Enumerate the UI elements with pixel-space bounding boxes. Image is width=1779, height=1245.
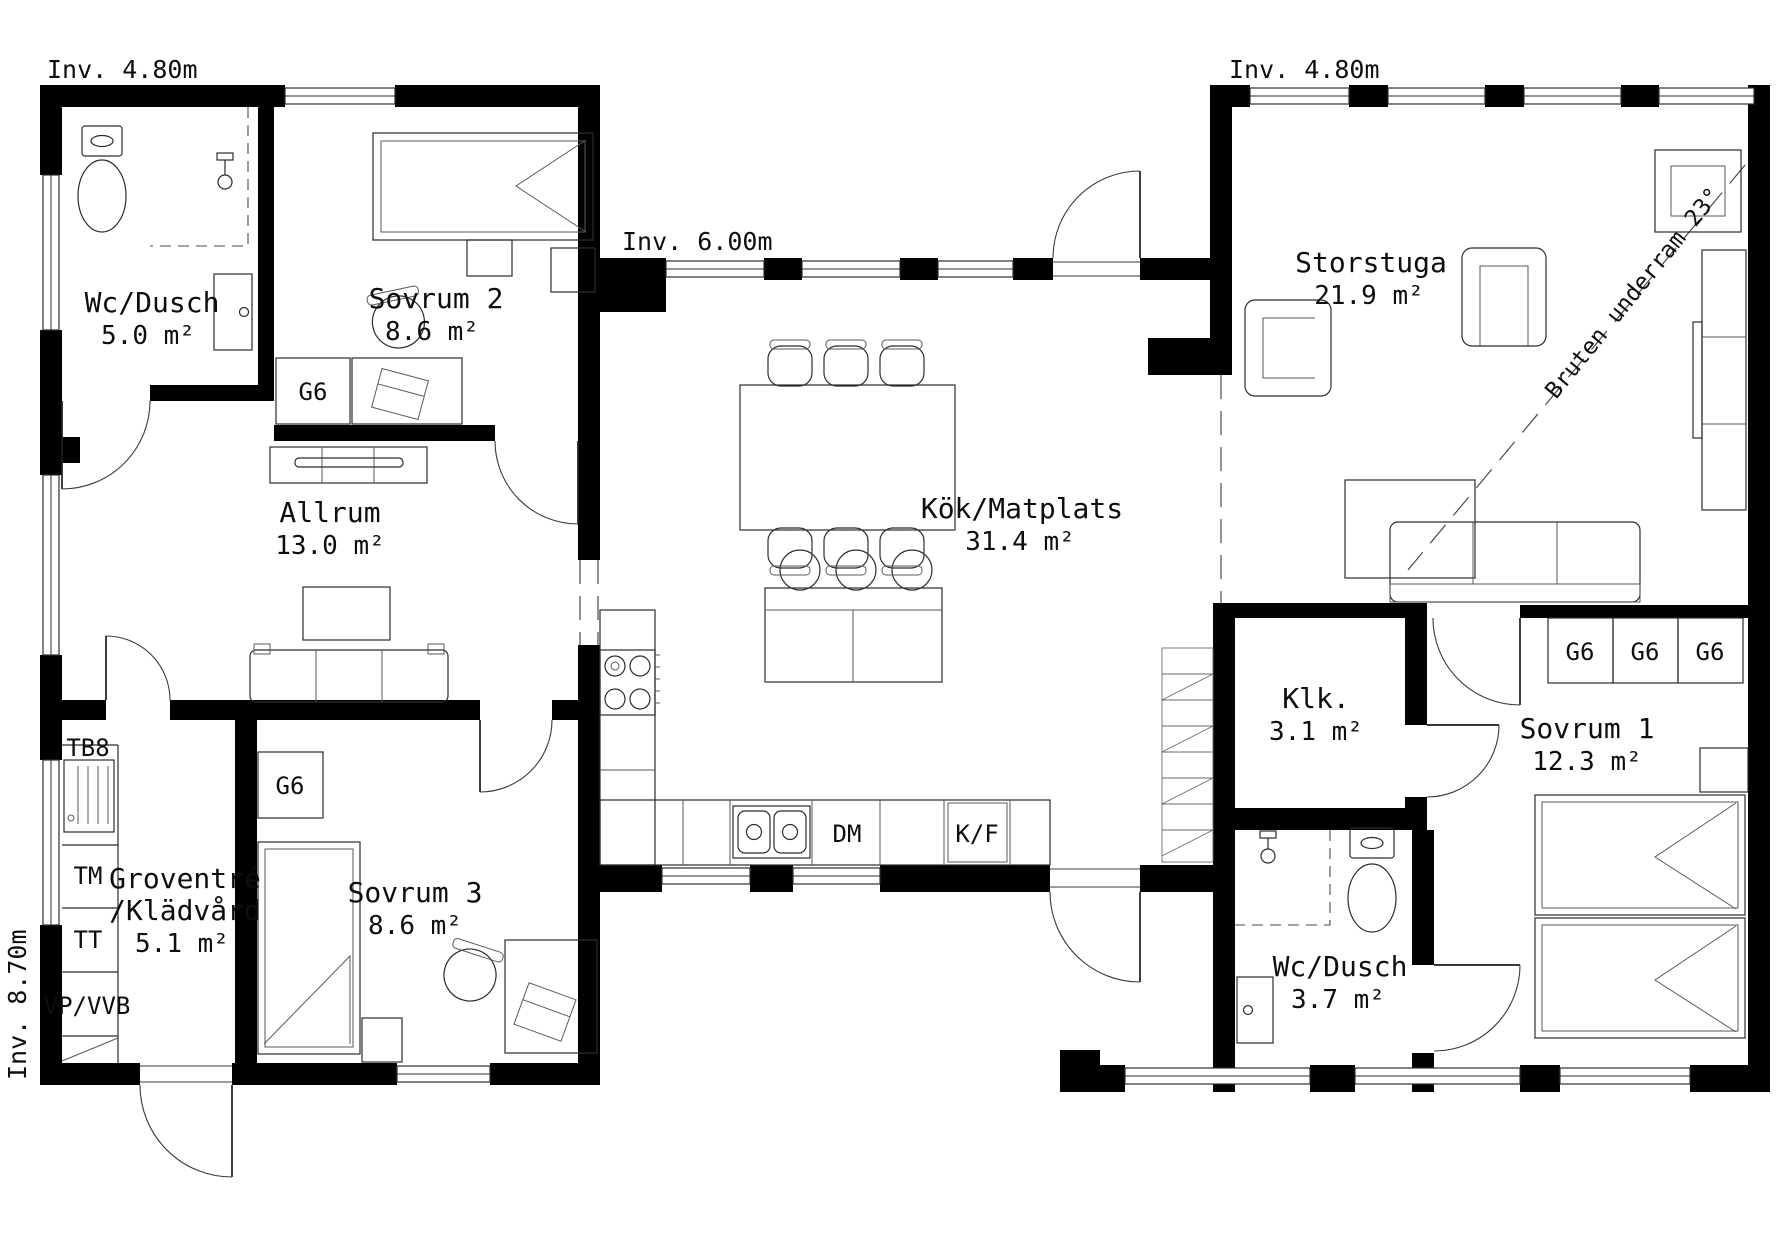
window: [397, 1066, 490, 1082]
tumble-dryer-label: TT: [74, 926, 103, 954]
floor-plan-drawing: Inv. 4.80m Inv. 6.00m Inv. 4.80m Inv. 8.…: [0, 0, 1779, 1245]
window: [1524, 88, 1621, 104]
armchair: [1462, 248, 1546, 346]
window: [1125, 1068, 1310, 1084]
window: [802, 261, 900, 277]
room-area-klk: 3.1 m²: [1269, 717, 1363, 747]
wall-segment: [1412, 830, 1434, 965]
wall-segment: [1485, 85, 1524, 107]
wall-segment: [1520, 605, 1748, 618]
kitchen-sink: [733, 806, 810, 858]
wardrobe-label: G6: [1566, 638, 1595, 666]
bed: [1535, 918, 1745, 1038]
fridge-freezer-label: K/F: [955, 820, 998, 848]
toilet: [78, 126, 126, 232]
room-label-wc2: Wc/Dusch: [1273, 950, 1408, 983]
bed: [258, 842, 360, 1054]
bathroom-sink: [1237, 977, 1273, 1043]
underbed-box: [467, 240, 512, 276]
shower-mixer: [217, 153, 233, 189]
tv-bench-allrum: [270, 447, 427, 483]
wall-segment: [1210, 85, 1232, 375]
wall-segment: [880, 865, 1050, 892]
armchair: [1245, 300, 1331, 396]
door-klk: [1427, 725, 1499, 797]
dishwasher-label: DM: [833, 820, 862, 848]
nightstand: [1700, 748, 1748, 792]
room-label-sovrum3: Sovrum 3: [348, 876, 483, 909]
wall-segment: [1405, 618, 1427, 725]
room-area-sovrum2: 8.6 m²: [385, 317, 479, 347]
room-area-wc1: 5.0 m²: [101, 321, 195, 351]
wall-segment: [40, 655, 62, 760]
wall-segment: [750, 865, 793, 892]
shower-mixer: [1260, 831, 1276, 863]
bathroom-sink: [214, 274, 252, 350]
door-sovrum1: [1433, 618, 1520, 705]
sofa-storstuga: [1390, 522, 1640, 602]
wall-segment: [1520, 1065, 1560, 1092]
wall-segment: [578, 85, 600, 560]
wall-segment: [1213, 603, 1235, 830]
room-area-allrum: 13.0 m²: [275, 531, 385, 561]
door-terrace: [1050, 869, 1140, 982]
window: [285, 88, 395, 104]
shower-outline-wc2: [1235, 830, 1330, 925]
room-label-klk: Klk.: [1282, 682, 1349, 715]
coffee-table-storstuga: [1345, 480, 1475, 578]
tv-bench-storstuga: [1693, 250, 1746, 510]
wall-segment: [62, 437, 80, 463]
desk-sovrum2: [352, 358, 462, 424]
wall-segment: [170, 700, 480, 720]
window: [43, 760, 59, 925]
window: [666, 261, 764, 277]
window: [662, 868, 750, 884]
washing-machine-label: TM: [74, 862, 103, 890]
wall-segment: [232, 1063, 397, 1085]
wardrobe-label: G6: [299, 378, 328, 406]
room-area-sovrum1: 12.3 m²: [1532, 747, 1642, 777]
room-label-storstuga: Storstuga: [1295, 246, 1447, 279]
door-sovrum3: [480, 720, 552, 792]
window: [938, 261, 1013, 277]
dim-label-top-mid: Inv. 6.00m: [622, 227, 773, 256]
wall-segment: [1213, 808, 1427, 830]
doors: [62, 171, 1520, 1177]
wardrobe-label: G6: [1631, 638, 1660, 666]
kitchen-island: [765, 550, 942, 682]
kitchen-counter-left: [600, 610, 660, 865]
room-label-kok: Kök/Matplats: [921, 492, 1123, 525]
dining-set: [740, 340, 955, 575]
wall-segment: [1013, 258, 1053, 280]
dim-label-top-right: Inv. 4.80m: [1229, 55, 1380, 84]
wall-segment: [40, 85, 285, 107]
wall-segment: [274, 425, 495, 441]
dim-label-left-side: Inv. 8.70m: [3, 929, 32, 1080]
wall-segment: [1690, 1065, 1770, 1092]
wardrobe-label: G6: [1696, 638, 1725, 666]
heat-pump-label: VP/VVB: [44, 992, 131, 1020]
wall-segment: [900, 258, 938, 280]
room-area-sovrum3: 8.6 m²: [368, 911, 462, 941]
wall-segment: [258, 107, 274, 385]
wall-segment: [40, 330, 62, 475]
opening-allrum-kok: [580, 560, 598, 645]
window: [793, 868, 880, 884]
wall-segment: [62, 700, 106, 720]
window: [1560, 1068, 1690, 1084]
wall-segment: [1148, 338, 1232, 375]
bed: [1535, 795, 1745, 915]
bed: [373, 133, 593, 240]
floor-plan-page: Inv. 4.80m Inv. 6.00m Inv. 4.80m Inv. 8.…: [0, 0, 1779, 1245]
foot-box: [362, 1018, 402, 1062]
room-label-groventre-2: /Klädvård: [109, 894, 261, 927]
wall-segment: [1213, 603, 1427, 618]
wall-segment: [150, 385, 274, 401]
door-groventre: [106, 636, 170, 700]
window: [1250, 88, 1349, 104]
door-kitchen-north: [1053, 171, 1140, 276]
door-wc2: [1434, 965, 1520, 1051]
door-entry: [140, 1066, 232, 1177]
wall-segment: [552, 700, 600, 720]
wall-segment: [1213, 830, 1235, 1092]
wall-segment: [40, 85, 62, 175]
wall-segment: [1349, 85, 1388, 107]
wardrobe-label: G6: [276, 772, 305, 800]
wall-segment: [1748, 85, 1770, 1092]
roof-annotation: Bruten underram 23°: [1540, 183, 1726, 404]
wall-segment: [764, 258, 802, 280]
room-label-allrum: Allrum: [279, 496, 380, 529]
room-label-wc1: Wc/Dusch: [85, 286, 220, 319]
wall-segment: [1140, 865, 1213, 892]
sofa-allrum: [250, 644, 448, 702]
room-label-groventre-1: Groventré: [109, 862, 261, 895]
wall-segment: [40, 1063, 140, 1085]
coffee-table-allrum: [303, 587, 390, 640]
exterior-steps-hatch: [1162, 648, 1213, 862]
wall-segment: [1310, 1065, 1355, 1092]
room-area-storstuga: 21.9 m²: [1314, 281, 1424, 311]
chair-sovrum3: [437, 937, 504, 1007]
windows: [43, 88, 1754, 1084]
room-label-sovrum1: Sovrum 1: [1520, 712, 1655, 745]
wall-segment: [1621, 85, 1659, 107]
door-sovrum2: [495, 441, 578, 524]
wall-segment: [1060, 1065, 1125, 1092]
dim-label-top-left: Inv. 4.80m: [47, 55, 198, 84]
toilet: [1348, 828, 1396, 932]
room-area-kok: 31.4 m²: [965, 527, 1075, 557]
window: [1388, 88, 1485, 104]
laundry-bench-label: TB8: [66, 734, 109, 762]
window: [43, 475, 59, 655]
room-area-wc2: 3.7 m²: [1291, 985, 1385, 1015]
window: [43, 175, 59, 330]
room-label-sovrum2: Sovrum 2: [369, 282, 504, 315]
window: [1355, 1068, 1520, 1084]
shower-outline-wc1: [150, 107, 248, 246]
wall-segment: [578, 258, 666, 312]
wall-segment: [600, 865, 662, 892]
wall-segment: [395, 85, 600, 107]
window: [1659, 88, 1754, 104]
room-area-groventre: 5.1 m²: [135, 929, 229, 959]
